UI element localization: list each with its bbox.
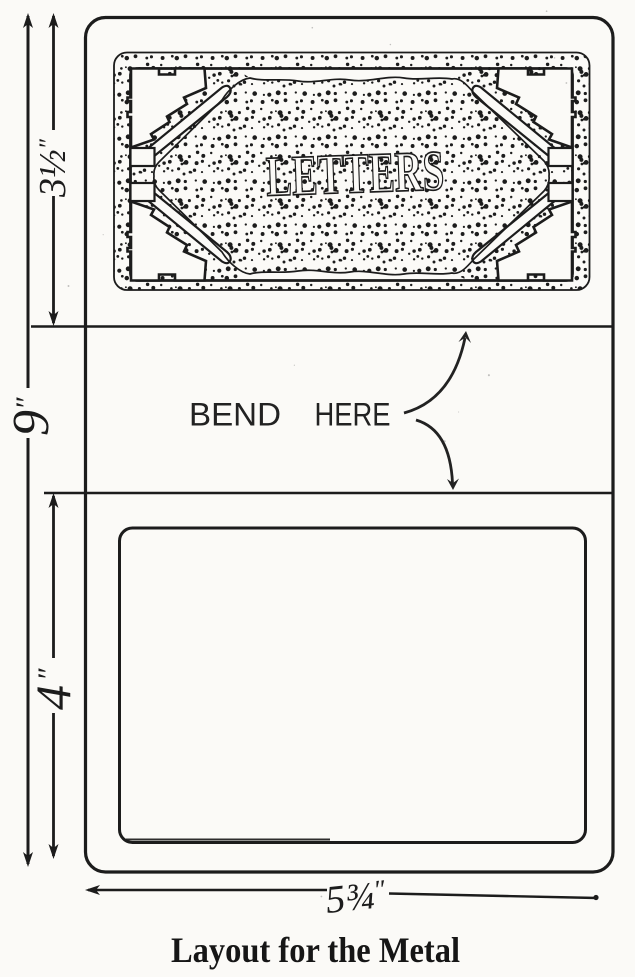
svg-text:4″: 4″ <box>25 668 81 710</box>
svg-text:BEND: BEND <box>189 397 281 433</box>
svg-text:3½″: 3½″ <box>32 139 74 199</box>
svg-text:9″: 9″ <box>3 397 60 436</box>
svg-text:Layout for the Metal: Layout for the Metal <box>171 930 460 970</box>
svg-text:5¾″: 5¾″ <box>323 873 388 922</box>
svg-text:LETTERS: LETTERS <box>265 139 445 208</box>
svg-text:HERE: HERE <box>315 397 391 433</box>
